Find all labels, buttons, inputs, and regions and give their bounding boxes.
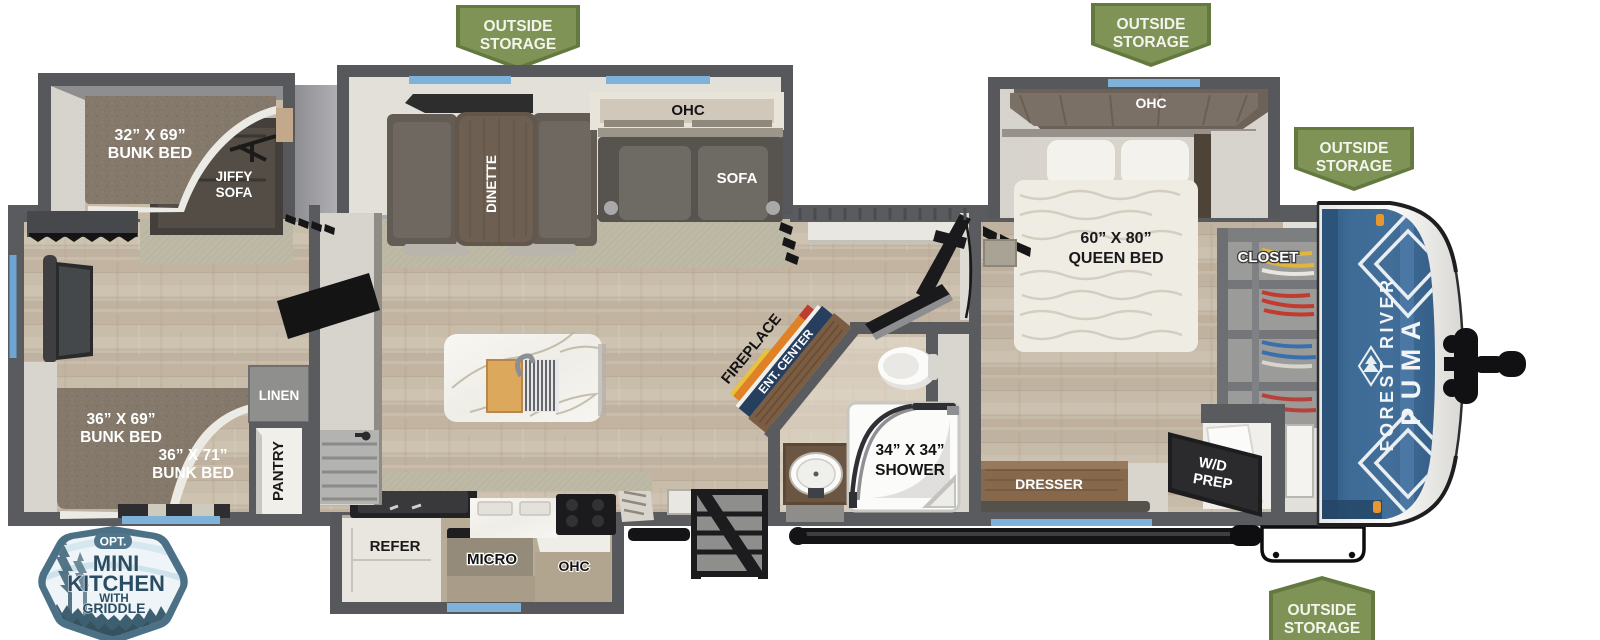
svg-text:JIFFY: JIFFY [216, 169, 253, 184]
svg-text:REFER: REFER [370, 538, 421, 555]
svg-text:BUNK BED: BUNK BED [108, 145, 192, 162]
svg-text:OHC: OHC [671, 102, 705, 119]
svg-text:STORAGE: STORAGE [1113, 34, 1189, 51]
svg-text:STORAGE: STORAGE [1284, 620, 1360, 637]
svg-text:36” X 71”: 36” X 71” [159, 447, 228, 464]
svg-text:SOFA: SOFA [216, 185, 253, 200]
svg-text:34” X 34”: 34” X 34” [876, 442, 945, 459]
svg-text:BUNK BED: BUNK BED [80, 429, 162, 446]
svg-text:OUTSIDE: OUTSIDE [1117, 16, 1186, 33]
svg-text:STORAGE: STORAGE [480, 36, 556, 53]
svg-text:FOREST RIVER: FOREST RIVER [1377, 276, 1397, 451]
svg-text:GRIDDLE: GRIDDLE [83, 600, 146, 616]
svg-text:OUTSIDE: OUTSIDE [1320, 140, 1389, 157]
svg-text:60” X 80”: 60” X 80” [1080, 230, 1151, 247]
svg-text:CLOSET: CLOSET [1238, 249, 1299, 266]
svg-text:LINEN: LINEN [259, 388, 300, 403]
svg-text:MICRO: MICRO [467, 551, 517, 568]
svg-text:QUEEN BED: QUEEN BED [1068, 250, 1163, 267]
svg-text:SHOWER: SHOWER [875, 462, 945, 479]
svg-text:36” X 69”: 36” X 69” [87, 411, 156, 428]
svg-text:OUTSIDE: OUTSIDE [1288, 602, 1357, 619]
svg-text:BUNK BED: BUNK BED [152, 465, 234, 482]
svg-text:STORAGE: STORAGE [1316, 158, 1392, 175]
svg-text:PANTRY: PANTRY [270, 441, 287, 501]
svg-text:OHC: OHC [558, 558, 589, 574]
svg-text:OUTSIDE: OUTSIDE [484, 18, 553, 35]
svg-text:PUMA: PUMA [1396, 312, 1426, 426]
svg-text:32” X 69”: 32” X 69” [114, 127, 185, 144]
svg-text:OPT.: OPT. [100, 535, 127, 549]
svg-text:DRESSER: DRESSER [1015, 476, 1083, 492]
svg-text:DINETTE: DINETTE [484, 155, 499, 213]
svg-text:OHC: OHC [1135, 95, 1166, 111]
svg-text:SOFA: SOFA [717, 170, 758, 187]
